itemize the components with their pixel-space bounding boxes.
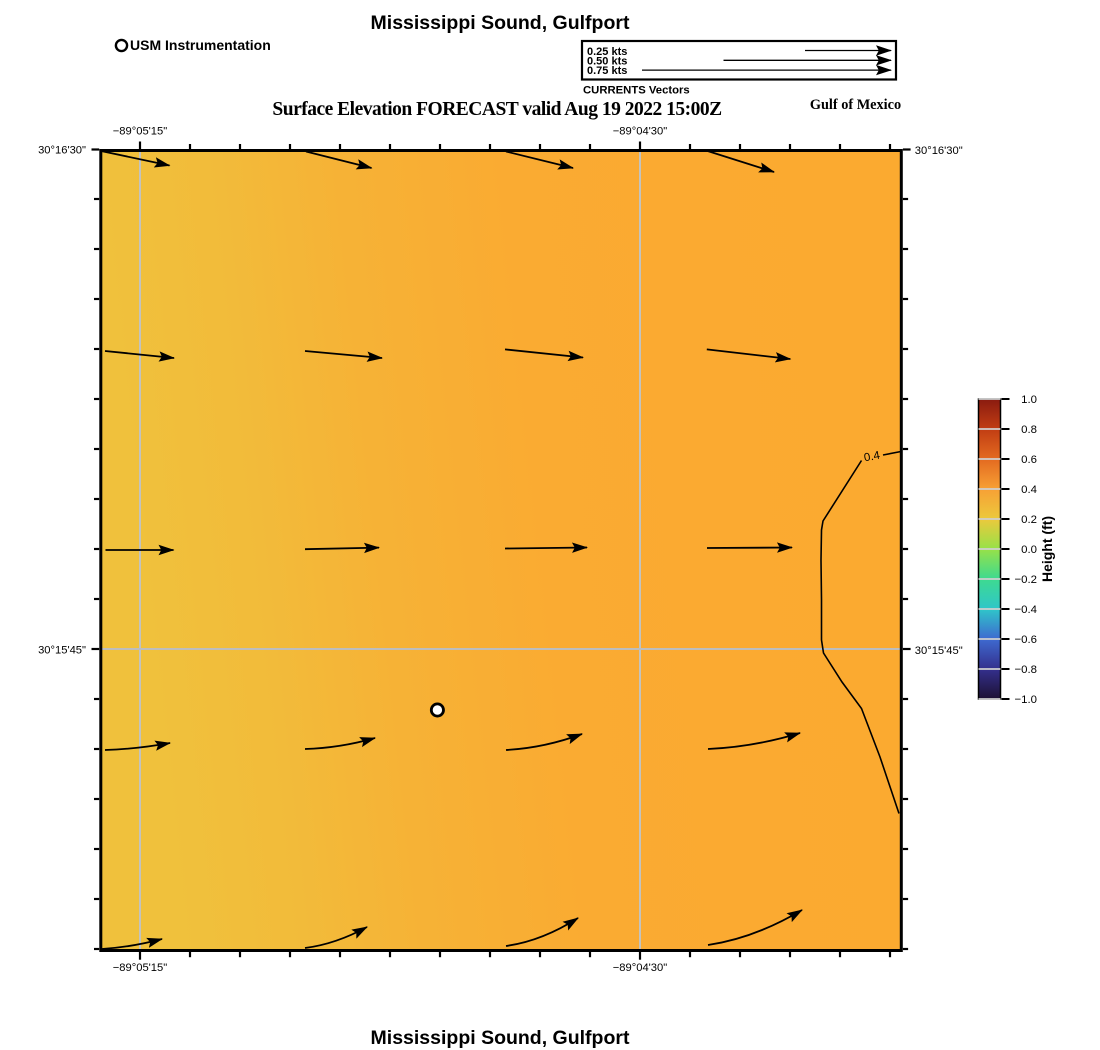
- svg-text:USM Instrumentation: USM Instrumentation: [130, 37, 271, 53]
- svg-text:Gulf of Mexico: Gulf of Mexico: [810, 97, 901, 113]
- svg-text:−89°04'30": −89°04'30": [613, 962, 667, 974]
- svg-text:CURRENTS Vectors: CURRENTS Vectors: [583, 85, 690, 97]
- svg-text:−0.8: −0.8: [1015, 664, 1038, 676]
- svg-text:30°16'30": 30°16'30": [915, 145, 963, 157]
- svg-text:0.0: 0.0: [1021, 544, 1037, 556]
- svg-text:−0.6: −0.6: [1015, 634, 1038, 646]
- svg-text:−0.2: −0.2: [1015, 574, 1038, 586]
- svg-text:1.0: 1.0: [1021, 394, 1037, 406]
- svg-text:30°15'45": 30°15'45": [915, 645, 963, 657]
- svg-text:Height (ft): Height (ft): [1039, 516, 1055, 582]
- svg-text:−89°05'15": −89°05'15": [113, 962, 167, 974]
- svg-text:0.2: 0.2: [1021, 514, 1037, 526]
- svg-text:Mississippi Sound, Gulfport: Mississippi Sound, Gulfport: [371, 1027, 630, 1049]
- svg-text:30°15'45": 30°15'45": [38, 644, 86, 656]
- svg-text:Surface Elevation FORECAST val: Surface Elevation FORECAST valid Aug 19 …: [272, 99, 722, 120]
- svg-text:−89°05'15": −89°05'15": [113, 126, 167, 138]
- svg-text:0.75 kts: 0.75 kts: [587, 65, 627, 77]
- svg-text:0.4: 0.4: [1021, 484, 1037, 496]
- svg-text:0.8: 0.8: [1021, 424, 1037, 436]
- svg-text:−1.0: −1.0: [1015, 694, 1038, 706]
- svg-text:30°16'30": 30°16'30": [38, 144, 86, 156]
- svg-text:0.6: 0.6: [1021, 454, 1037, 466]
- svg-text:Mississippi Sound, Gulfport: Mississippi Sound, Gulfport: [371, 12, 630, 34]
- svg-text:−0.4: −0.4: [1015, 604, 1038, 616]
- svg-text:−89°04'30": −89°04'30": [613, 126, 667, 138]
